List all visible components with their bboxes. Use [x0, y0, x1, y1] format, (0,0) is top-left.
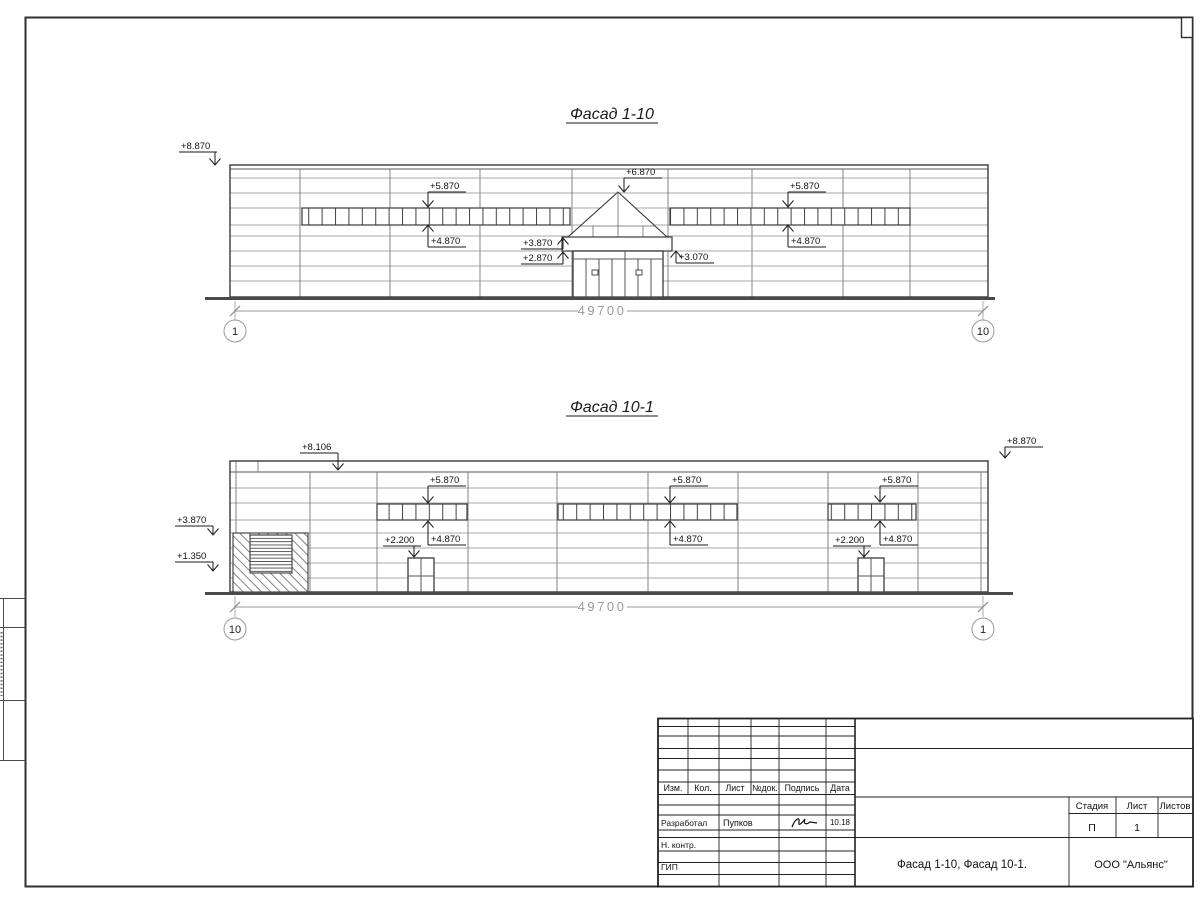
axis-marker-left: 10: [224, 618, 246, 640]
elevation-mark: +5.870: [423, 181, 467, 207]
elevation-mark: +3.070: [671, 251, 715, 263]
hatched-wall-block: [233, 533, 308, 592]
developed-name: Пупков: [723, 818, 753, 828]
door-left: [408, 558, 434, 592]
elevation-mark: +3.870: [175, 515, 219, 535]
ncontr-label: Н. контр.: [661, 840, 696, 850]
dimension: 49700: [230, 596, 988, 617]
svg-text:+4.870: +4.870: [791, 236, 820, 247]
window-band-right: [828, 504, 916, 520]
drawing-canvas: Фасад 1-10: [0, 0, 1200, 900]
drawing-sheet: Фасад 1-10: [0, 0, 1200, 900]
gip-label: ГИП: [661, 862, 678, 872]
window-band-right: [670, 208, 910, 225]
col-list: Лист: [725, 783, 744, 793]
elevation-mark: +2.200: [833, 535, 871, 557]
axis-marker-right: 10: [972, 320, 994, 342]
entrance-pyramid-roof: [568, 192, 667, 237]
svg-text:+1.350: +1.350: [177, 551, 206, 562]
svg-text:+4.870: +4.870: [431, 236, 460, 247]
svg-text:+6.870: +6.870: [626, 167, 655, 178]
svg-text:+3.070: +3.070: [679, 252, 708, 263]
svg-text:+3.870: +3.870: [177, 515, 206, 526]
developed-date: 10.18: [830, 818, 851, 827]
frame-side-column: [0, 598, 25, 761]
window-band-left: [302, 208, 570, 225]
axis-number: 1: [232, 326, 238, 338]
developed-label: Разработал: [661, 818, 707, 828]
window-band-left: [377, 504, 467, 520]
col-ndok: №док.: [752, 783, 778, 793]
axis-number: 10: [977, 326, 989, 338]
elevation-mark: +5.870: [423, 475, 467, 503]
axis-marker-right: 1: [972, 618, 994, 640]
facade-title: Фасад 1-10: [570, 106, 654, 123]
svg-text:+2.200: +2.200: [835, 535, 864, 546]
svg-text:+4.870: +4.870: [431, 534, 460, 545]
elevation-mark: +5.870: [875, 475, 919, 502]
svg-text:+5.870: +5.870: [430, 475, 459, 486]
axis-marker-left: 1: [224, 320, 246, 342]
elevation-mark: +5.870: [783, 181, 827, 207]
facade-1-10: Фасад 1-10: [179, 106, 995, 342]
company-name: ООО "Альянс": [1094, 859, 1168, 871]
svg-text:+4.870: +4.870: [883, 534, 912, 545]
door-handle: [592, 270, 598, 275]
col-kol: Кол.: [694, 783, 711, 793]
sheets-label: Листов: [1160, 801, 1191, 812]
entrance-canopy: [562, 237, 672, 251]
col-podpis: Подпись: [785, 783, 820, 793]
svg-text:+4.870: +4.870: [673, 534, 702, 545]
elevation-mark: +3.870: [521, 238, 569, 249]
svg-text:+2.200: +2.200: [385, 535, 414, 546]
elevation-marks-f1: +8.870 +5.870 +5.870 +4.870 +4.870 +6.87…: [179, 141, 826, 264]
stage-value: П: [1088, 822, 1096, 834]
elevation-mark: +1.350: [175, 551, 219, 571]
dimension: 49700: [230, 301, 988, 320]
axis-number: 10: [229, 624, 241, 636]
door-right: [858, 558, 884, 592]
sheet-label: Лист: [1127, 801, 1148, 812]
svg-text:+3.870: +3.870: [523, 238, 552, 249]
frame-corner-box: [1182, 18, 1193, 38]
col-data: Дата: [830, 783, 850, 793]
axis-number: 1: [980, 624, 986, 636]
elevation-mark: +5.870: [665, 475, 709, 503]
stage-label: Стадия: [1076, 801, 1108, 812]
svg-text:+5.870: +5.870: [882, 475, 911, 486]
window-band-middle: [558, 504, 737, 520]
elevation-mark: +2.200: [383, 535, 421, 557]
doc-title: Фасад 1-10, Фасад 10-1.: [897, 859, 1027, 871]
svg-text:+8.106: +8.106: [302, 442, 331, 453]
dimension-text: 49700: [578, 303, 627, 318]
col-izm: Изм.: [664, 783, 683, 793]
elevation-mark: +8.870: [179, 141, 221, 165]
sheet-value: 1: [1134, 822, 1140, 834]
elevation-mark: +8.870: [1000, 436, 1044, 458]
dimension-text: 49700: [578, 599, 627, 614]
title-block: Изм. Кол. Лист №док. Подпись Дата Разраб…: [658, 719, 1193, 887]
svg-text:+8.870: +8.870: [1007, 436, 1036, 447]
svg-text:+8.870: +8.870: [181, 141, 210, 152]
svg-text:+5.870: +5.870: [430, 181, 459, 192]
elevation-mark: +6.870: [619, 167, 663, 192]
elevation-mark: +8.106: [300, 442, 344, 470]
door-handle: [636, 270, 642, 275]
facade-title: Фасад 10-1: [570, 399, 654, 416]
svg-text:+5.870: +5.870: [790, 181, 819, 192]
ventilation-louver: [250, 535, 292, 573]
svg-text:+2.870: +2.870: [523, 253, 552, 264]
svg-text:+5.870: +5.870: [672, 475, 701, 486]
facade-10-1: Фасад 10-1: [175, 399, 1043, 640]
elevation-mark: +2.870: [521, 252, 569, 264]
